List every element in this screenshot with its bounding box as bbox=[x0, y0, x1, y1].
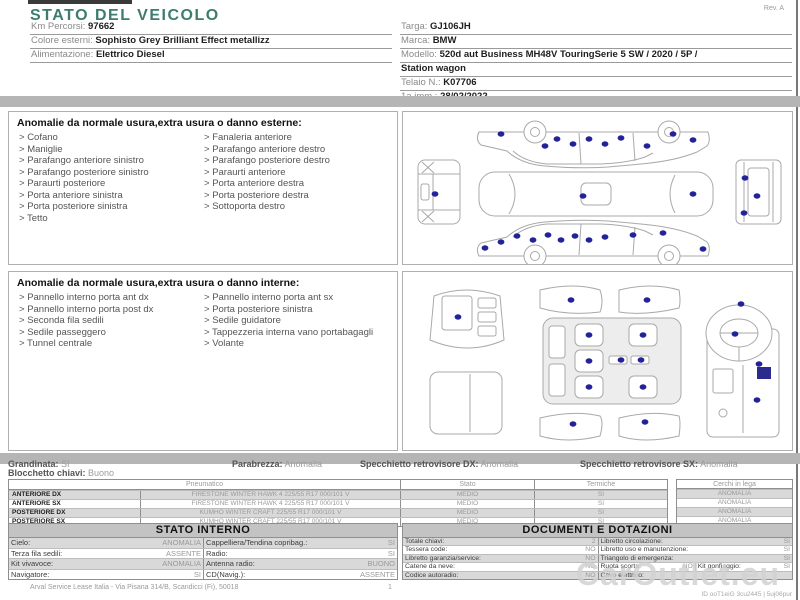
tyre-rows: ANTERIORE DXFIRESTONE WINTER HAWK 4 225/… bbox=[9, 490, 667, 526]
info-label: Cappelliera/Tendina copribag.: bbox=[206, 538, 307, 548]
tyre-stato: MEDIO bbox=[401, 491, 535, 499]
damage-dot bbox=[644, 297, 651, 302]
info-label: Kit vivavoce: bbox=[11, 559, 53, 569]
alloy-wheel-status: ANOMALIA bbox=[677, 507, 792, 516]
field-label: Targa: bbox=[401, 21, 427, 32]
revision-label: Rev. A bbox=[764, 5, 784, 12]
damage-dot bbox=[618, 135, 625, 140]
alloy-wheel-rows: ANOMALIAANOMALIAANOMALIAANOMALIA bbox=[677, 489, 792, 525]
damage-dot bbox=[586, 237, 593, 242]
tyre-table-header: Pneumatico Stato Termiche bbox=[9, 480, 667, 490]
tyre-model: FIRESTONE WINTER HAWK 4 225/55 R17 000/1… bbox=[141, 500, 401, 508]
damage-dot bbox=[586, 384, 593, 389]
damage-dot bbox=[498, 239, 505, 244]
tyre-table: Pneumatico Stato Termiche ANTERIORE DXFI… bbox=[8, 479, 668, 527]
anomaly-item: Parafango anteriore destro bbox=[204, 144, 389, 156]
anomaly-item: Porta posteriore sinistra bbox=[19, 201, 204, 213]
tyre-row: ANTERIORE SXFIRESTONE WINTER HAWK 4 225/… bbox=[9, 499, 667, 508]
info-cell: Terza fila sedili:ASSENTE bbox=[9, 549, 203, 559]
anomaly-item: Cofano bbox=[19, 132, 204, 144]
tyre-termiche: SI bbox=[535, 491, 667, 499]
info-label: Terza fila sedili: bbox=[11, 549, 62, 559]
field-value: Station wagon bbox=[401, 63, 466, 74]
anomaly-item: Sedile passeggero bbox=[19, 327, 204, 339]
status-parabrezza: Parabrezza: Anomalia bbox=[232, 459, 322, 469]
anomaly-item: Porta anteriore sinistra bbox=[19, 190, 204, 202]
anomaly-item: Parafango anteriore sinistro bbox=[19, 155, 204, 167]
exterior-car-views bbox=[403, 112, 792, 264]
info-cell: Navigatore:SI bbox=[9, 570, 203, 580]
info-cell: Libretto uso e manutenzione:SI bbox=[598, 546, 793, 553]
header-pneumatico: Pneumatico bbox=[9, 480, 401, 489]
header-field: Marca: BMW bbox=[400, 35, 792, 49]
damage-dot bbox=[644, 143, 651, 148]
info-value: 2 bbox=[592, 538, 596, 545]
damage-dot bbox=[545, 232, 552, 237]
anomaly-item: Porta posteriore sinistra bbox=[204, 304, 389, 316]
anomaly-item: Fanaleria anteriore bbox=[204, 132, 389, 144]
anomaly-item: Tappezzeria interna vano portabagagli bbox=[204, 327, 389, 339]
alloy-wheel-status: ANOMALIA bbox=[677, 498, 792, 507]
anomaly-item: Volante bbox=[204, 338, 389, 350]
info-value: SI bbox=[784, 555, 790, 562]
anomaly-item: Tunnel centrale bbox=[19, 338, 204, 350]
footer-company: Arval Service Lease Italia - Via Pisana … bbox=[30, 584, 238, 591]
info-row: Terza fila sedili:ASSENTERadio:SI bbox=[9, 548, 397, 559]
anomaly-item: Maniglie bbox=[19, 144, 204, 156]
damage-dot bbox=[754, 193, 761, 198]
vehicle-summary-right: Targa: GJ106JHMarca: BMWModello: 520d au… bbox=[400, 21, 792, 105]
info-value: SI bbox=[784, 563, 790, 570]
info-row: Kit vivavoce:ANOMALIAAntenna radio:BUONO bbox=[9, 558, 397, 569]
damage-dot bbox=[732, 331, 739, 336]
damage-dot bbox=[690, 137, 697, 142]
interior-anomalies-box: Anomalie da normale usura,extra usura o … bbox=[8, 271, 398, 451]
exterior-anomalies-title: Anomalie da normale usura,extra usura o … bbox=[17, 117, 389, 129]
anomaly-item: Pannello interno porta ant dx bbox=[19, 292, 204, 304]
exterior-damage-dots bbox=[432, 131, 761, 251]
damage-dot bbox=[554, 136, 561, 141]
exterior-anomalies-col1: CofanoManiglieParafango anteriore sinist… bbox=[19, 132, 204, 225]
header-field: Km Percorsi: 97662 bbox=[30, 21, 392, 35]
info-cell: Radio:SI bbox=[203, 549, 397, 559]
damage-dot bbox=[630, 232, 637, 237]
info-value: SI bbox=[784, 546, 790, 553]
damage-dot bbox=[700, 246, 707, 251]
damage-dot bbox=[455, 314, 462, 319]
damage-dot bbox=[568, 297, 575, 302]
damage-dot bbox=[670, 131, 677, 136]
tyre-position: ANTERIORE SX bbox=[9, 500, 141, 508]
damage-dot bbox=[754, 397, 761, 402]
watermark-brand: CarOutlet.eu bbox=[576, 556, 780, 593]
damage-dot bbox=[530, 237, 537, 242]
interior-anomalies-col2: Pannello interno porta ant sxPorta poste… bbox=[204, 292, 389, 350]
vehicle-summary-left: Km Percorsi: 97662Colore esterni: Sophis… bbox=[30, 21, 392, 63]
damage-dot bbox=[756, 361, 763, 366]
info-value: SI bbox=[388, 538, 395, 548]
info-value: SI bbox=[194, 570, 201, 580]
anomaly-item: Pannello interno porta ant sx bbox=[204, 292, 389, 304]
info-label: Navigatore: bbox=[11, 570, 49, 580]
damage-dot bbox=[498, 131, 505, 136]
damage-dot bbox=[558, 237, 565, 242]
info-label: Totale chiavi: bbox=[405, 538, 444, 545]
info-label: Cielo: bbox=[11, 538, 30, 548]
anomaly-item: Paraurti anteriore bbox=[204, 167, 389, 179]
interior-anomalies-title: Anomalie da normale usura,extra usura o … bbox=[17, 277, 389, 289]
anomaly-item: Pannello interno porta post dx bbox=[19, 304, 204, 316]
exterior-anomalies-col2: Fanaleria anterioreParafango anteriore d… bbox=[204, 132, 389, 225]
anomaly-item: Tetto bbox=[19, 213, 204, 225]
field-label: Marca: bbox=[401, 35, 430, 46]
damage-dot bbox=[602, 234, 609, 239]
damage-dot bbox=[618, 357, 625, 362]
header-stato: Stato bbox=[401, 480, 535, 489]
info-value: ASSENTE bbox=[166, 549, 201, 559]
tyre-model: FIRESTONE WINTER HAWK 4 225/55 R17 000/1… bbox=[141, 491, 401, 499]
damage-dot bbox=[570, 141, 577, 146]
damage-dot bbox=[542, 143, 549, 148]
info-cell: Cappelliera/Tendina copribag.:SI bbox=[203, 538, 397, 548]
damage-dot bbox=[514, 233, 521, 238]
anomaly-item: Parafango posteriore destro bbox=[204, 155, 389, 167]
info-row: Navigatore:SICD(Navig.):ASSENTE bbox=[9, 569, 397, 580]
damage-dot bbox=[602, 141, 609, 146]
damage-dot bbox=[660, 230, 667, 235]
alloy-wheel-status: ANOMALIA bbox=[677, 489, 792, 498]
info-row: Totale chiavi:2Libretto circolazione:SI bbox=[403, 538, 792, 545]
info-value: NO bbox=[585, 546, 595, 553]
info-row: Cielo:ANOMALIACappelliera/Tendina coprib… bbox=[9, 538, 397, 548]
info-label: Antenna radio: bbox=[206, 559, 255, 569]
field-label: Modello: bbox=[401, 49, 437, 60]
field-label: Colore esterni: bbox=[31, 35, 93, 46]
damage-dot bbox=[640, 332, 647, 337]
damage-dot bbox=[586, 136, 593, 141]
damage-dot bbox=[638, 357, 645, 362]
header-field: Alimentazione: Elettrico Diesel bbox=[30, 49, 392, 63]
info-label: Codice autoradio: bbox=[405, 572, 458, 579]
info-cell: CD(Navig.):ASSENTE bbox=[203, 570, 397, 580]
anomaly-item: Parafango posteriore sinistro bbox=[19, 167, 204, 179]
info-label: Tessera code: bbox=[405, 546, 447, 553]
damage-dot bbox=[570, 421, 577, 426]
page-edge-line bbox=[796, 0, 798, 600]
damage-dot bbox=[742, 175, 749, 180]
info-label: Libretto circolazione: bbox=[601, 538, 663, 545]
tyre-row: POSTERIORE DXKUMHO WINTER CRAFT 225/55 R… bbox=[9, 508, 667, 517]
watermark-id: ID ooT1eiG 3cu2445 | 5uj06pur bbox=[701, 591, 792, 598]
exterior-damage-diagram bbox=[402, 111, 793, 265]
field-value: BMW bbox=[433, 35, 457, 46]
info-cell: Tessera code:NO bbox=[403, 546, 598, 553]
info-value: ANOMALIA bbox=[162, 559, 201, 569]
info-cell: Cielo:ANOMALIA bbox=[9, 538, 203, 548]
info-value: ASSENTE bbox=[360, 570, 395, 580]
separator-band bbox=[0, 96, 800, 107]
damage-dot bbox=[482, 245, 489, 250]
field-value: Elettrico Diesel bbox=[96, 49, 165, 60]
header-field: Station wagon bbox=[400, 63, 792, 77]
alloy-wheels-table: Cerchi in lega ANOMALIAANOMALIAANOMALIAA… bbox=[676, 479, 793, 526]
info-label: Libretto uso e manutenzione: bbox=[601, 546, 689, 553]
damage-dot bbox=[642, 419, 649, 424]
damage-dot bbox=[572, 233, 579, 238]
info-label: CD(Navig.): bbox=[206, 570, 245, 580]
info-value: SI bbox=[784, 538, 790, 545]
anomaly-item: Porta anteriore destra bbox=[204, 178, 389, 190]
field-value: 97662 bbox=[88, 21, 114, 32]
stato-interno-title: STATO INTERNO bbox=[9, 524, 397, 538]
tyre-termiche: SI bbox=[535, 500, 667, 508]
vehicle-condition-report: STATO DEL VEICOLO Rev. A Km Percorsi: 97… bbox=[0, 0, 800, 600]
info-cell: Libretto garanzia/service:NO bbox=[403, 555, 598, 562]
field-value: GJ106JH bbox=[430, 21, 471, 32]
info-value: BUONO bbox=[367, 559, 395, 569]
info-label: Libretto garanzia/service: bbox=[405, 555, 481, 562]
anomaly-item: Porta posteriore destra bbox=[204, 190, 389, 202]
damage-dot bbox=[741, 210, 748, 215]
header-termiche: Termiche bbox=[535, 480, 667, 489]
damage-dot bbox=[586, 332, 593, 337]
status-blocchetto-chiavi: Blocchetto chiavi: Buono bbox=[8, 468, 114, 478]
header-field: Telaio N.: K07706 bbox=[400, 77, 792, 91]
status-specchietto-dx: Specchietto retrovisore DX: Anomalia bbox=[360, 459, 518, 469]
anomaly-item: Sottoporta destro bbox=[204, 201, 389, 213]
interior-car-views bbox=[403, 272, 792, 450]
info-label: Radio: bbox=[206, 549, 228, 559]
tyre-model: KUMHO WINTER CRAFT 225/55 R17 000/101 V bbox=[141, 509, 401, 517]
damage-dot bbox=[586, 358, 593, 363]
scan-artifact-top bbox=[28, 0, 132, 4]
damage-dot bbox=[738, 301, 745, 306]
documenti-dotazioni-title: DOCUMENTI E DOTAZIONI bbox=[403, 524, 792, 538]
info-value: ANOMALIA bbox=[162, 538, 201, 548]
header-field: Modello: 520d aut Business MH48V Touring… bbox=[400, 49, 792, 63]
status-specchietto-sx: Specchietto retrovisore SX: Anomalia bbox=[580, 459, 738, 469]
tyre-stato: MEDIO bbox=[401, 500, 535, 508]
tyre-stato: MEDIO bbox=[401, 509, 535, 517]
interior-anomalies-col1: Pannello interno porta ant dxPannello in… bbox=[19, 292, 204, 350]
tyre-position: ANTERIORE DX bbox=[9, 491, 141, 499]
field-value: 520d aut Business MH48V TouringSerie 5 S… bbox=[440, 49, 698, 60]
field-label: Telaio N.: bbox=[401, 77, 441, 88]
info-cell: Codice autoradio:NO bbox=[403, 572, 598, 579]
field-label: Alimentazione: bbox=[31, 49, 93, 60]
tyre-position: POSTERIORE DX bbox=[9, 509, 141, 517]
info-cell: Libretto circolazione:SI bbox=[598, 538, 793, 545]
tyre-termiche: SI bbox=[535, 509, 667, 517]
stato-interno-table: STATO INTERNO Cielo:ANOMALIACappelliera/… bbox=[8, 523, 398, 580]
info-cell: Catene da neve:NO bbox=[403, 563, 598, 570]
header-cerchi: Cerchi in lega bbox=[677, 480, 792, 489]
anomaly-item: Seconda fila sedili bbox=[19, 315, 204, 327]
exterior-anomalies-box: Anomalie da normale usura,extra usura o … bbox=[8, 111, 398, 265]
info-cell: Kit vivavoce:ANOMALIA bbox=[9, 559, 203, 569]
field-label: Km Percorsi: bbox=[31, 21, 85, 32]
field-value: K07706 bbox=[443, 77, 476, 88]
damage-dot bbox=[690, 191, 697, 196]
damage-dot bbox=[432, 191, 439, 196]
footer-page-number: 1 bbox=[388, 584, 392, 591]
anomaly-item: Paraurti posteriore bbox=[19, 178, 204, 190]
info-cell: Antenna radio:BUONO bbox=[203, 559, 397, 569]
header-field: Colore esterni: Sophisto Grey Brilliant … bbox=[30, 35, 392, 49]
anomaly-item: Sedile guidatore bbox=[204, 315, 389, 327]
info-cell: Totale chiavi:2 bbox=[403, 538, 598, 545]
info-value: SI bbox=[388, 549, 395, 559]
damage-dot bbox=[640, 384, 647, 389]
tyre-row: ANTERIORE DXFIRESTONE WINTER HAWK 4 225/… bbox=[9, 490, 667, 499]
field-value: Sophisto Grey Brilliant Effect metallizz bbox=[95, 35, 269, 46]
interior-damage-diagram bbox=[402, 271, 793, 451]
info-label: Catene da neve: bbox=[405, 563, 455, 570]
info-row: Tessera code:NOLibretto uso e manutenzio… bbox=[403, 545, 792, 553]
damage-dot bbox=[580, 193, 587, 198]
header-field: Targa: GJ106JH bbox=[400, 21, 792, 35]
